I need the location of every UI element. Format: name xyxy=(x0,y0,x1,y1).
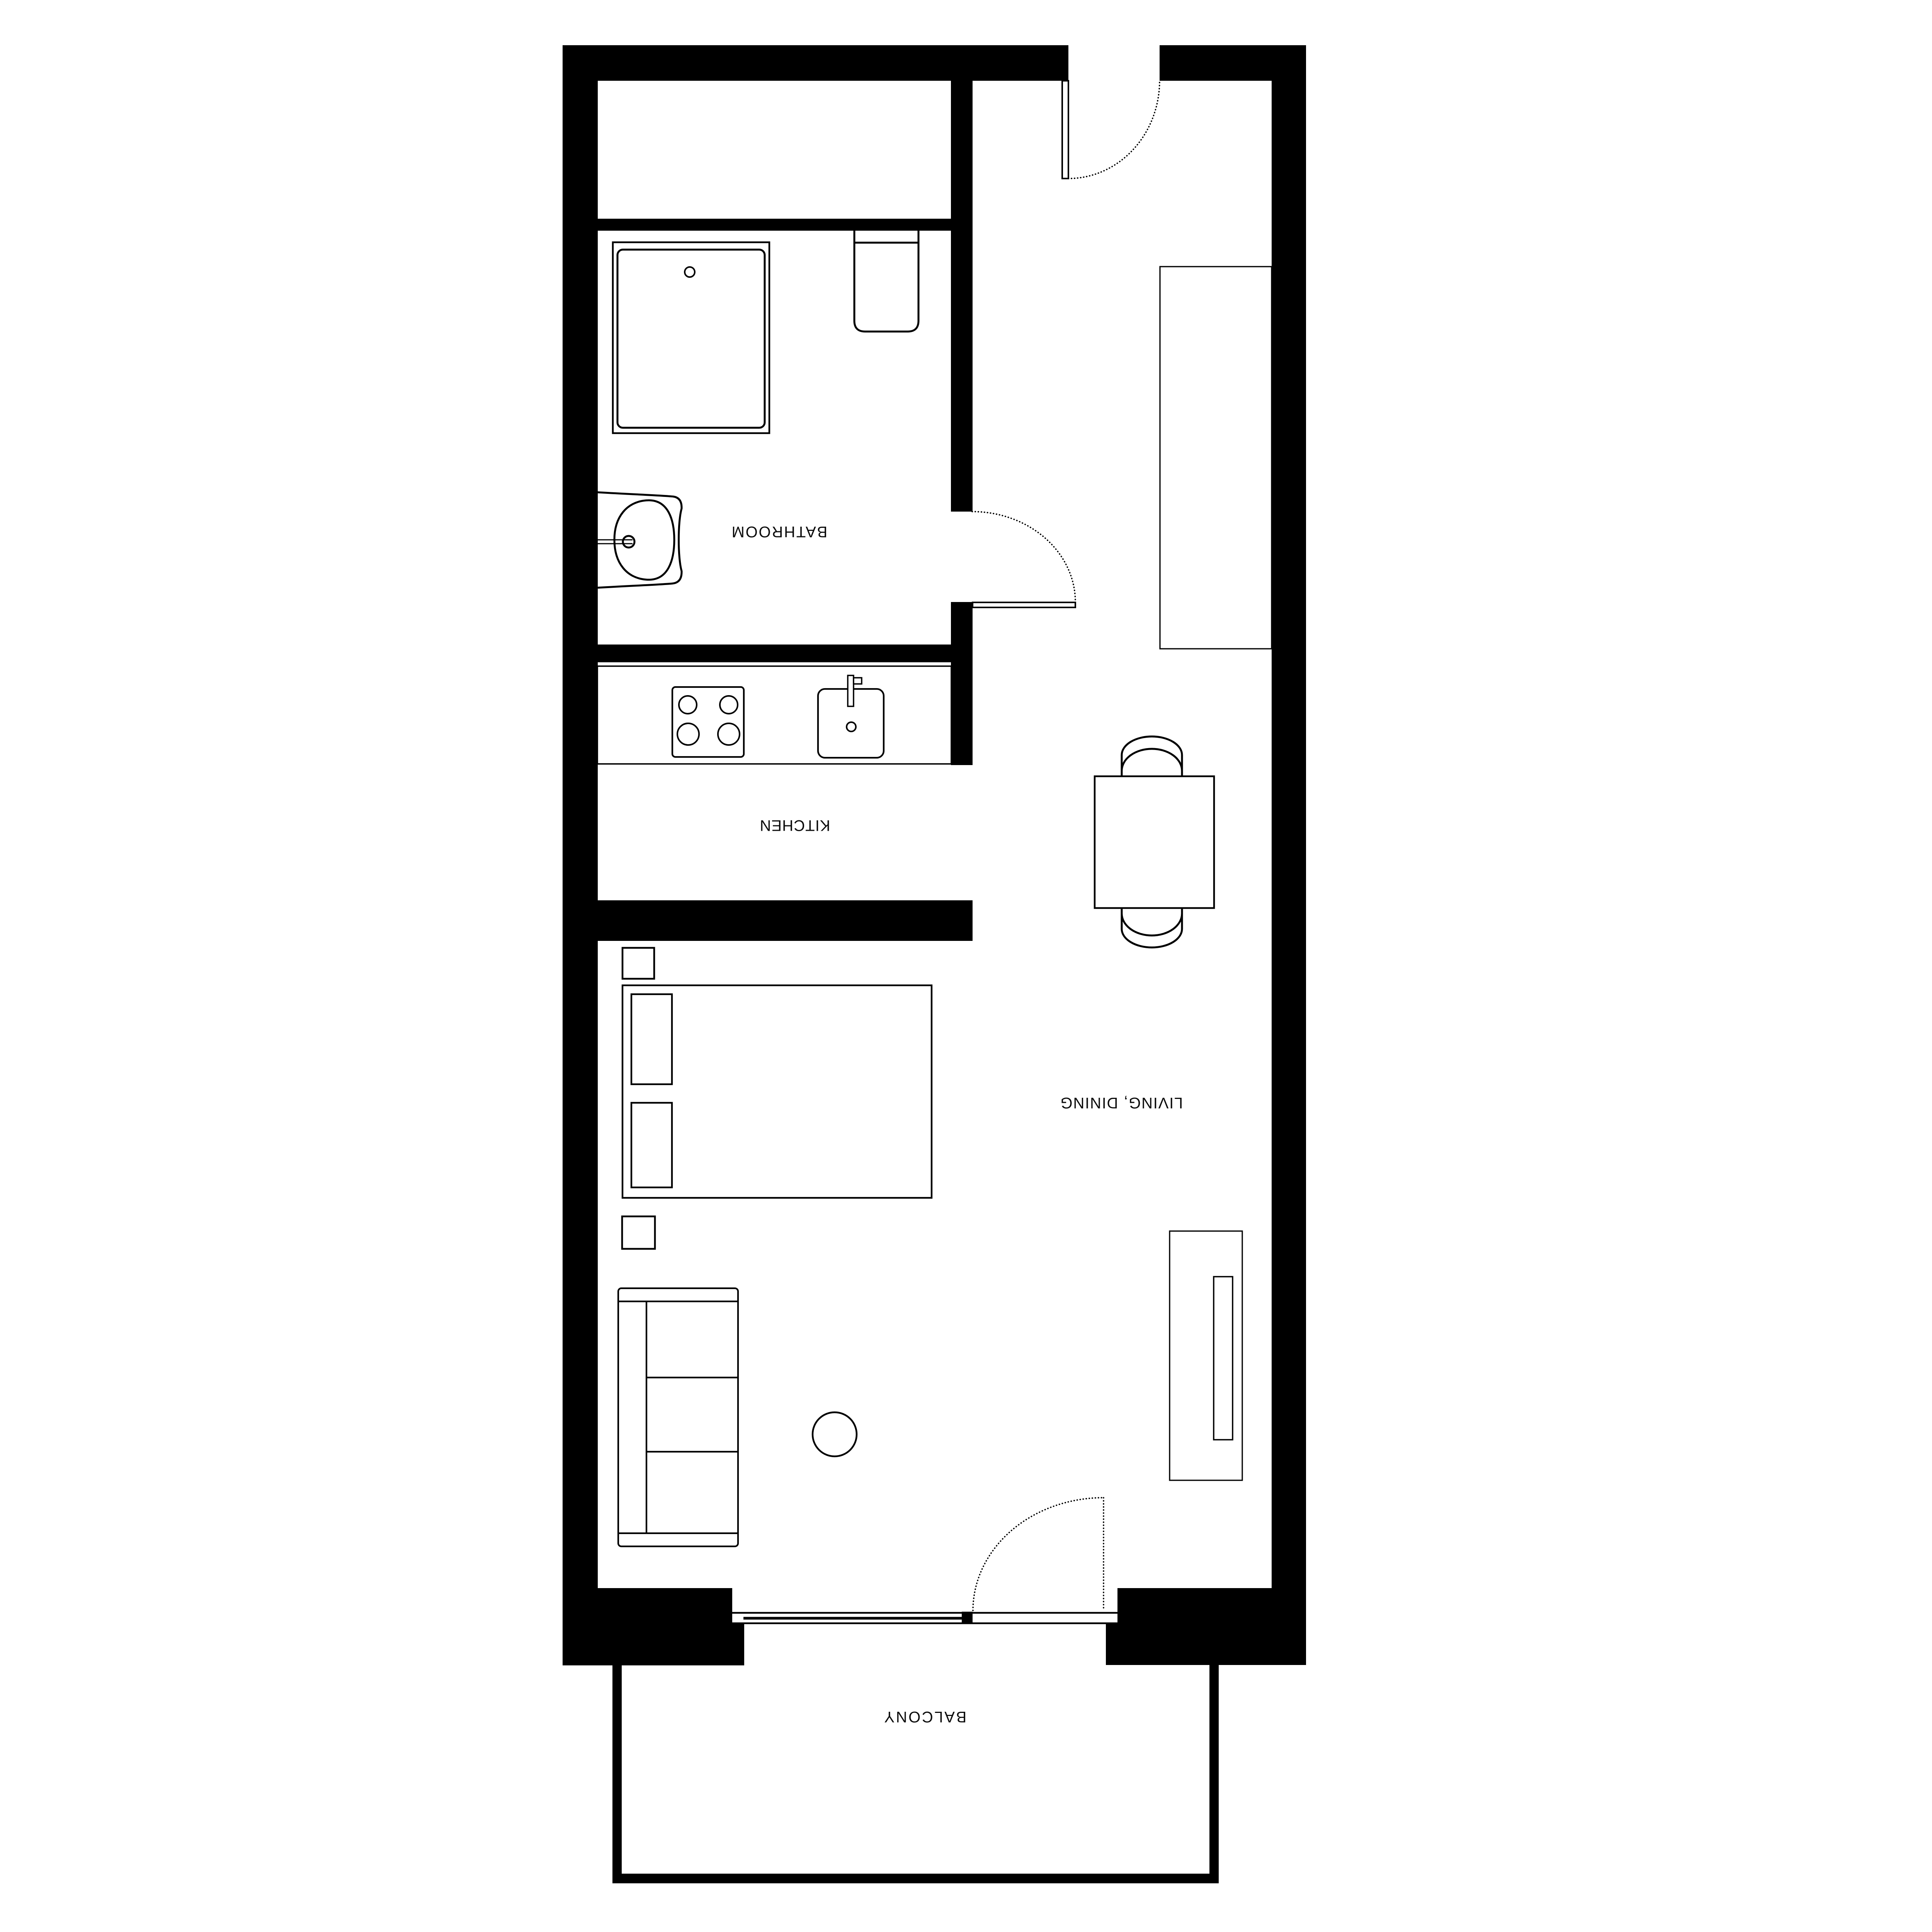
svg-text:BALCONY: BALCONY xyxy=(883,1708,966,1725)
svg-text:BATHROOM: BATHROOM xyxy=(731,523,828,540)
svg-text:LIVING, DINING: LIVING, DINING xyxy=(1060,1094,1183,1111)
svg-text:KITCHEN: KITCHEN xyxy=(759,817,830,834)
